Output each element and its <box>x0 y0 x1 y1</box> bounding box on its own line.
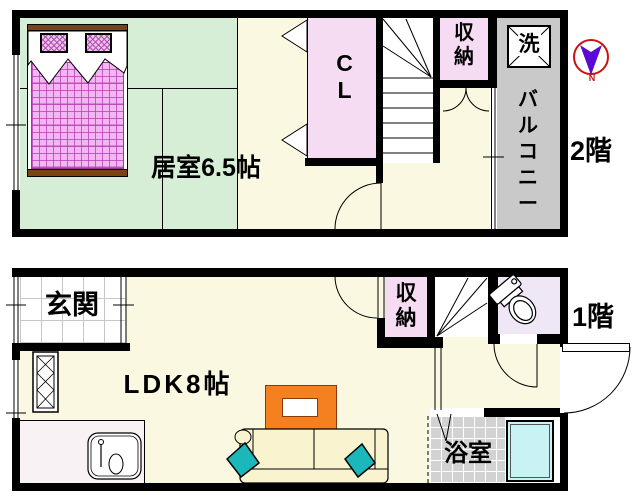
compass-icon <box>574 40 608 75</box>
sofa <box>227 429 388 483</box>
closet-door-triangles <box>282 20 307 156</box>
floor1-label: 1階 <box>572 303 636 331</box>
balcony-label: バルコニー <box>516 87 540 217</box>
window-glyphs-2f <box>6 55 504 229</box>
ldk-label: LDK8帖 <box>112 371 244 398</box>
staircase-1f-treads <box>437 278 487 336</box>
bedroom-label: 居室6.5帖 <box>140 155 272 181</box>
bed-pillow-right <box>85 33 112 53</box>
washer-label: 洗 <box>512 34 546 56</box>
storage-2f-label: 収納 <box>452 21 476 69</box>
entry-door-arc <box>564 347 630 413</box>
storage-1f-door <box>335 276 384 318</box>
bathroom-label: 浴室 <box>436 441 500 466</box>
floor-plan: 居室6.5帖 CL 収納 洗 バルコニー 2階 N 玄関 LDK8帖 収納 浴室… <box>0 0 640 503</box>
toilet-icon <box>489 274 544 331</box>
entrance-label: 玄関 <box>39 291 105 319</box>
storage-1f-label: 収納 <box>394 281 418 331</box>
toilet-door <box>494 344 537 387</box>
closet-cl-label: CL <box>336 50 353 104</box>
sink-icon <box>88 433 141 479</box>
floor2-label: 2階 <box>570 137 634 165</box>
stove-icon <box>33 352 58 412</box>
plan-linework <box>0 0 640 503</box>
storage-2f-door-arcs <box>443 88 489 111</box>
bed-pillow-left <box>40 33 68 53</box>
entry-door-leaf <box>562 343 630 352</box>
hall-door-2f <box>335 183 381 229</box>
compass-n-label: N <box>584 74 600 83</box>
staircase-2f-treads <box>383 19 433 153</box>
